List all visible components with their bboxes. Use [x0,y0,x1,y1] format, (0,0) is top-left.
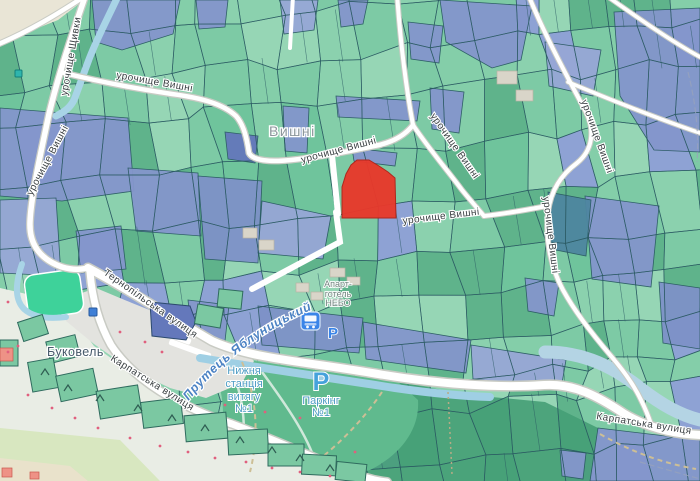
address-dot [329,475,332,478]
address-dot [7,351,10,354]
lift-station-label: Нижня [227,365,261,377]
address-dot [264,411,267,414]
place-label-vyshni: Вишні [269,123,316,139]
parcel-occupied[interactable] [128,168,201,236]
parcel-occupied[interactable] [338,0,368,27]
parking-icon[interactable]: P [313,368,330,396]
parking-icon[interactable]: P [328,325,338,342]
parcel-occupied[interactable] [408,22,443,63]
building-red [0,348,13,361]
building-red [2,468,12,477]
address-dot [129,437,132,440]
hotel-label: НЕБО [325,298,350,308]
address-dot [299,417,302,420]
parcel[interactable] [479,132,535,199]
parcel-occupied[interactable] [280,0,318,34]
poi-marker-teal[interactable] [15,70,22,77]
address-dot [354,451,357,454]
lift-station-label: №1 [235,403,253,415]
address-dot [214,457,217,460]
lift-station-label: станція [225,378,262,390]
cadastral-map[interactable]: урочище Щивки урочище Вишні урочище Вишн… [0,0,700,481]
poi-marker-blue[interactable] [89,308,97,316]
address-dot [299,471,302,474]
address-dot [27,394,30,397]
parcel-occupied[interactable] [525,278,559,316]
parcel-occupied[interactable] [198,176,262,263]
address-dot [17,345,20,348]
address-dot [159,445,162,448]
place-label-bukovel: Буковель [47,345,104,359]
address-dot [224,404,227,407]
parcel[interactable] [565,0,609,30]
parcel[interactable] [463,291,506,340]
address-dot [271,467,274,470]
address-dot [119,331,122,334]
address-dot [144,341,147,344]
lift-station-label: витягу [228,391,261,403]
address-dot [74,417,77,420]
address-dot [97,427,100,430]
parcel-occupied[interactable] [560,450,586,479]
parcel-occupied[interactable] [196,0,228,29]
parcel[interactable] [660,229,700,269]
hotel-label: Апарт- [324,279,352,289]
address-dot [245,461,248,464]
address-dot [7,301,10,304]
map-canvas[interactable]: урочище Щивки урочище Вишні урочище Вишн… [0,0,700,481]
parking-label: №1 [312,407,330,419]
building-red [30,472,39,479]
address-dot [161,351,164,354]
address-dot [51,407,54,410]
parking-label: Паркінг [302,395,340,407]
address-dot [187,451,190,454]
